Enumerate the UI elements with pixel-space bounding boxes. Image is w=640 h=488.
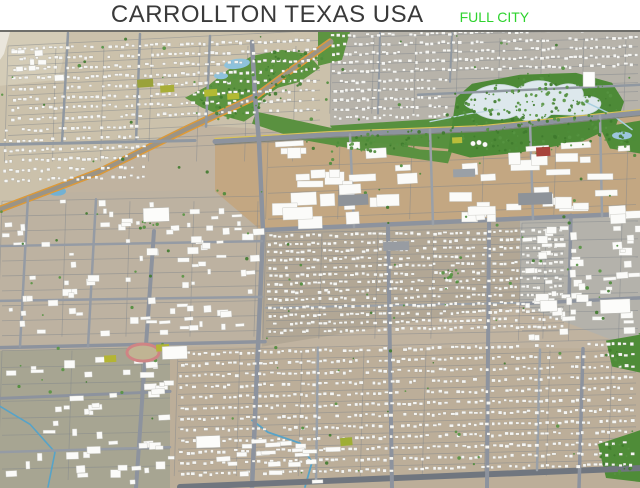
page-title: CARROLLTON TEXAS USA	[111, 0, 424, 30]
sports-field	[137, 79, 154, 88]
sports-field	[452, 137, 462, 143]
parking-lot	[383, 241, 409, 251]
tower-building	[583, 72, 595, 87]
school-building	[162, 346, 187, 360]
storage-tank	[477, 140, 482, 145]
sports-field	[340, 437, 353, 446]
map-svg	[0, 32, 640, 488]
sports-field	[104, 355, 116, 363]
parking-lot	[338, 194, 369, 207]
parking-lot	[453, 169, 475, 178]
large-building	[143, 207, 169, 222]
storage-tank	[483, 142, 488, 147]
large-building	[600, 299, 630, 314]
large-building	[196, 435, 220, 448]
sports-field	[204, 89, 217, 97]
storage-tank	[471, 141, 476, 146]
city-3d-render	[0, 30, 640, 488]
large-building	[540, 300, 557, 312]
parking-lot	[518, 192, 552, 205]
sports-field	[227, 93, 239, 100]
header: CARROLLTON TEXAS USAFULL CITY	[0, 0, 640, 30]
sports-field	[160, 85, 174, 93]
full-city-label: FULL CITY	[460, 2, 530, 32]
red-roof-building	[536, 147, 550, 157]
page: CARROLLTON TEXAS USAFULL CITY	[0, 0, 640, 488]
running-track	[127, 344, 159, 361]
